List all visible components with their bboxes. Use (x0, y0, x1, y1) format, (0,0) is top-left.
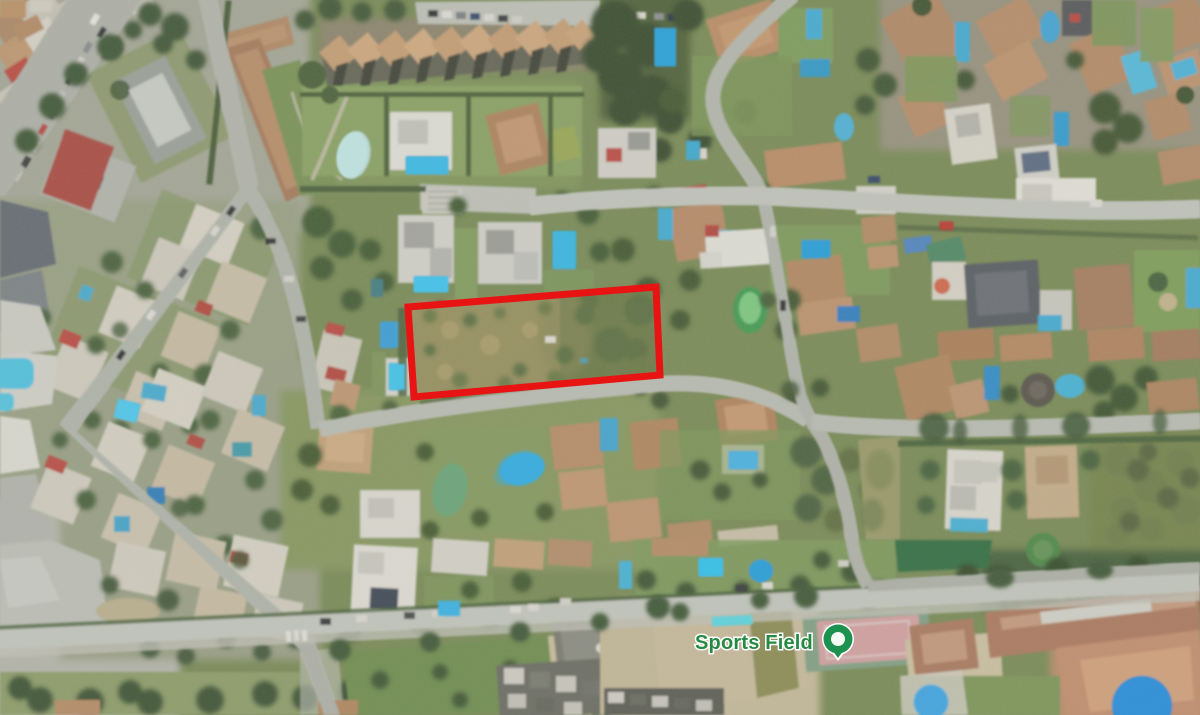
svg-text:Sports Field: Sports Field (695, 632, 813, 654)
